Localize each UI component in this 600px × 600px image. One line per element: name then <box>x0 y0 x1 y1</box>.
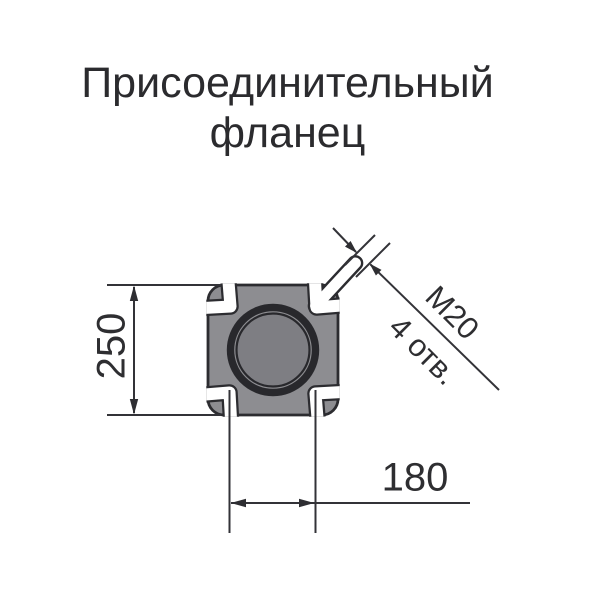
screenshot-root: Присоединительный фланец 250 180 М20 4 о… <box>0 0 600 600</box>
dimension-label-spacing: 180 <box>382 456 449 501</box>
center-bore <box>231 308 316 393</box>
dimension-label-height: 250 <box>90 313 135 380</box>
page-title: Присоединительный фланец <box>0 58 575 158</box>
page-title-line1: Присоединительный <box>0 58 575 108</box>
page-title-line2: фланец <box>0 108 575 158</box>
